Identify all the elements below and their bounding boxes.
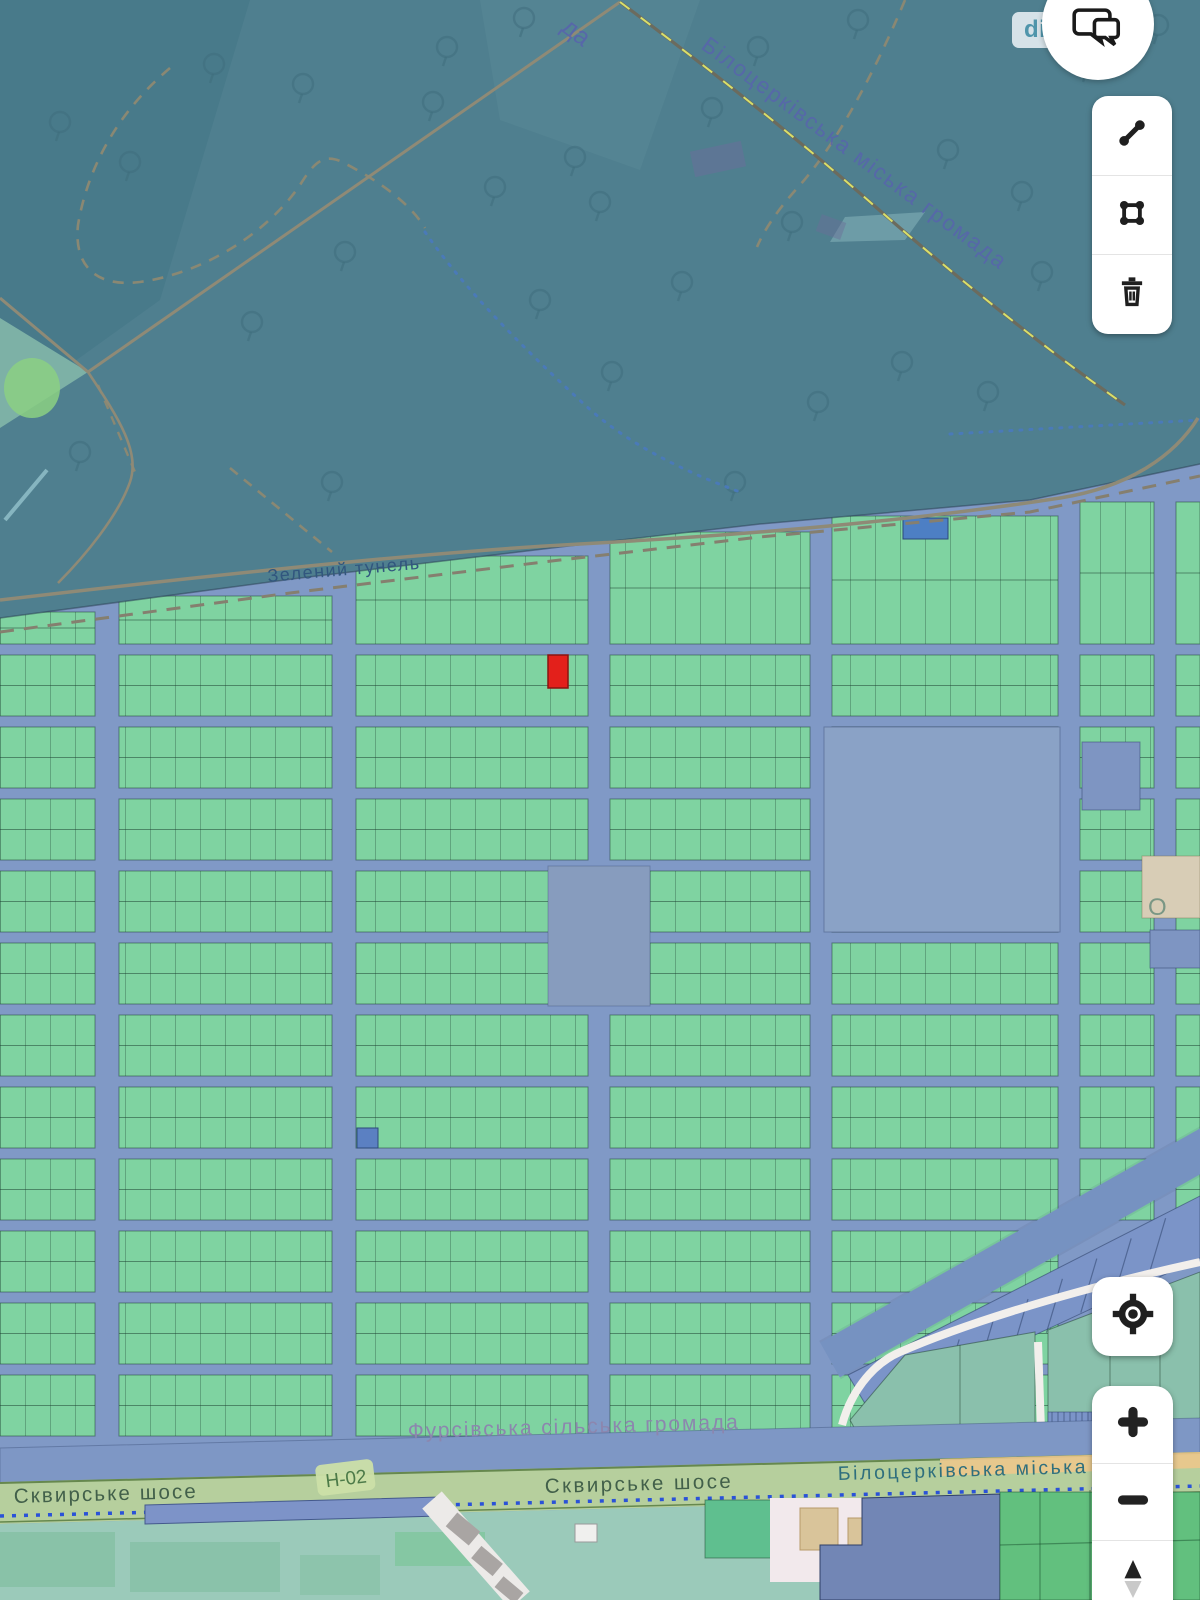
compass-button[interactable] bbox=[1092, 1541, 1173, 1600]
draw-polygon-icon bbox=[1114, 195, 1150, 236]
minus-icon bbox=[1112, 1479, 1154, 1526]
compass-needle-icon bbox=[1112, 1554, 1154, 1600]
zoom-panel bbox=[1092, 1386, 1173, 1600]
draw-toolbar bbox=[1092, 96, 1172, 334]
blue-parcel-small[interactable] bbox=[357, 1128, 378, 1148]
delete-icon bbox=[1114, 274, 1150, 315]
zoom-in-button[interactable] bbox=[1092, 1386, 1173, 1463]
map-layer: да Білоцерківська міська громада Зелений… bbox=[0, 0, 1200, 1600]
village-blue-zone bbox=[1082, 742, 1140, 810]
plus-icon bbox=[1112, 1401, 1154, 1448]
draw-polygon-button[interactable] bbox=[1092, 176, 1172, 255]
measure-distance-button[interactable] bbox=[1092, 96, 1172, 175]
measure-distance-icon bbox=[1114, 115, 1150, 156]
central-plaza-area[interactable] bbox=[548, 866, 650, 1006]
map-canvas[interactable]: да Білоцерківська міська громада Зелений… bbox=[0, 0, 1200, 1600]
locate-button[interactable] bbox=[1092, 1277, 1173, 1356]
empty-reserved-area[interactable] bbox=[824, 727, 1060, 932]
zoom-out-button[interactable] bbox=[1092, 1464, 1173, 1541]
delete-button[interactable] bbox=[1092, 255, 1172, 334]
gps-locate-icon bbox=[1109, 1290, 1157, 1343]
chat-bubbles-icon bbox=[1069, 3, 1127, 58]
place-name-fragment: О bbox=[1148, 894, 1167, 921]
village-blue-zone-2 bbox=[1150, 930, 1200, 968]
selected-parcel-red[interactable] bbox=[548, 655, 568, 688]
